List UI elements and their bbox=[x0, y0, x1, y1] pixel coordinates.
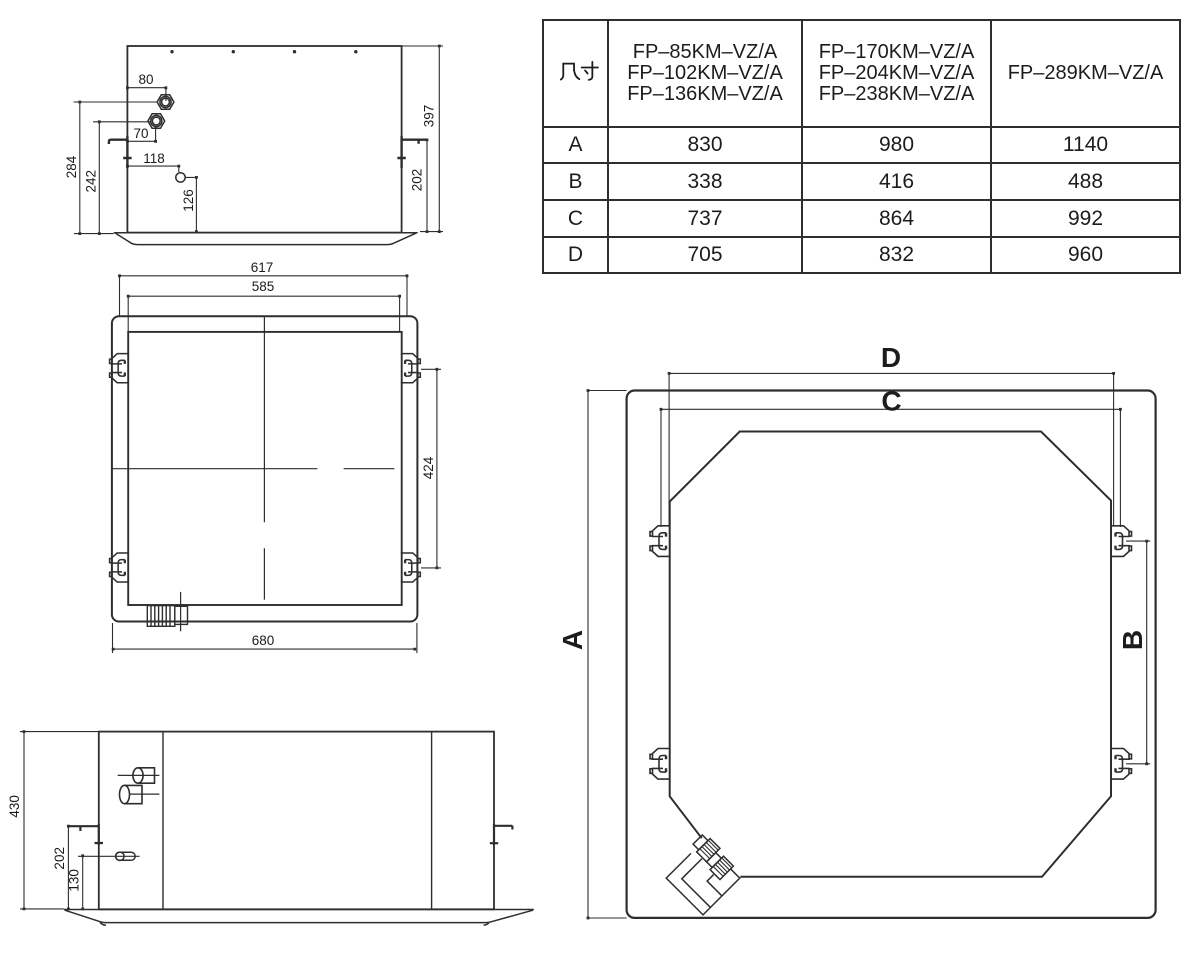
svg-text:130: 130 bbox=[67, 869, 82, 892]
svg-text:B: B bbox=[1117, 630, 1148, 650]
svg-text:617: 617 bbox=[251, 260, 274, 275]
svg-text:126: 126 bbox=[181, 189, 196, 212]
svg-text:397: 397 bbox=[422, 105, 437, 128]
svg-text:202: 202 bbox=[52, 847, 67, 870]
svg-text:202: 202 bbox=[410, 169, 425, 192]
svg-text:80: 80 bbox=[138, 72, 153, 87]
svg-text:70: 70 bbox=[133, 126, 148, 141]
svg-text:242: 242 bbox=[84, 170, 99, 193]
svg-text:430: 430 bbox=[7, 795, 22, 818]
svg-text:585: 585 bbox=[252, 279, 275, 294]
svg-text:424: 424 bbox=[421, 456, 436, 479]
svg-text:680: 680 bbox=[252, 633, 275, 648]
svg-text:C: C bbox=[881, 386, 901, 417]
svg-text:A: A bbox=[557, 630, 588, 650]
svg-text:118: 118 bbox=[143, 151, 165, 166]
svg-text:D: D bbox=[881, 342, 901, 373]
svg-text:284: 284 bbox=[64, 155, 79, 178]
